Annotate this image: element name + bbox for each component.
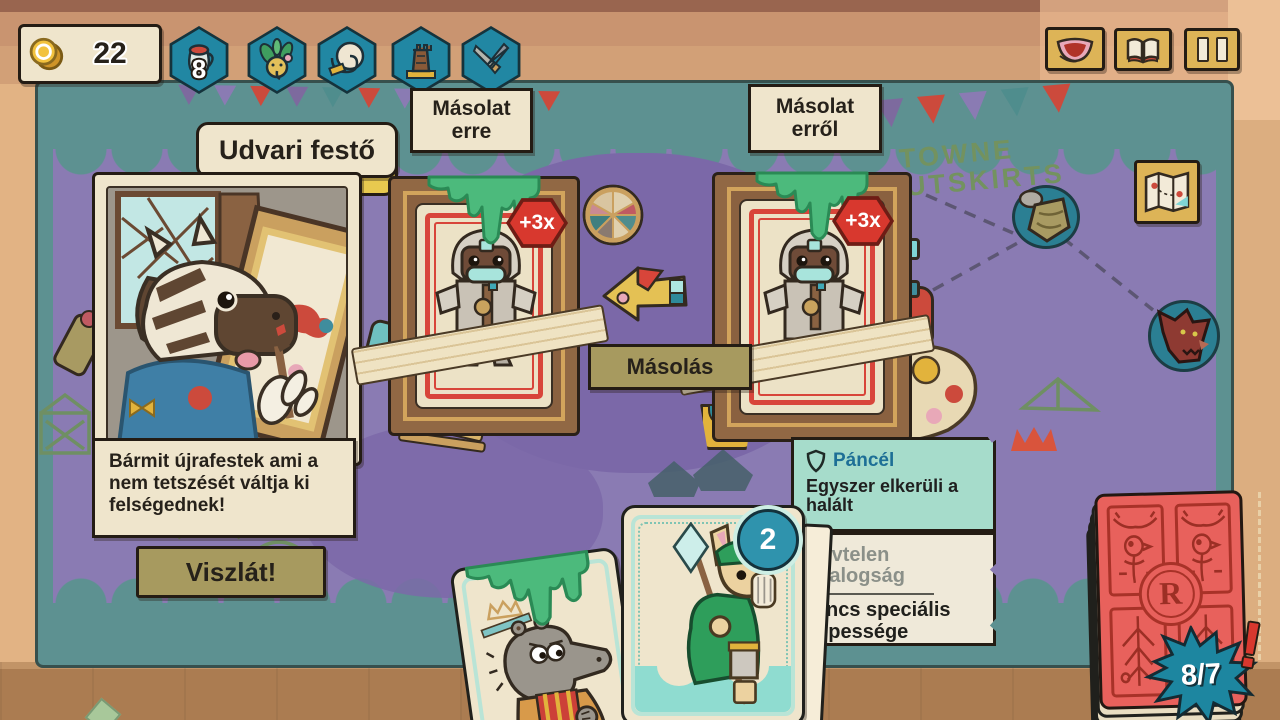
coin-icon: [29, 37, 65, 71]
keyword-description: Egyszer elkerüli a halált: [806, 477, 981, 516]
copy-arrow-icon: [596, 260, 692, 332]
book-icon: [1123, 35, 1163, 65]
event-description: Bármit újrafestek ami a nem tetszését vá…: [92, 438, 356, 538]
event-title: Udvari festő: [219, 135, 375, 166]
journal-button[interactable]: [1114, 28, 1172, 71]
card-counter-badge: 2: [737, 509, 799, 571]
card-name: Névtelen gyalogság: [806, 545, 981, 587]
event-title-banner: Udvari festő: [196, 122, 398, 178]
hand-card-hippo[interactable]: [449, 546, 644, 720]
card-ability: Nincs speciális képessége: [806, 600, 981, 643]
keyword-tooltip: Páncél Egyszer elkerüli a halált: [791, 437, 996, 532]
map-icon: [1144, 171, 1190, 213]
pause-bar: [1216, 37, 1228, 62]
coin-count: 22: [69, 37, 151, 71]
pause-button[interactable]: [1184, 28, 1240, 71]
map-node-parchment[interactable]: [1012, 185, 1080, 249]
mouth-icon: [1055, 34, 1095, 64]
coin-counter: 22: [18, 24, 162, 84]
shield-icon: [806, 449, 826, 473]
character-portrait: [106, 186, 348, 452]
game-screen: TOWNE OUTSKIRTS: [0, 0, 1280, 720]
copy-source-label: Másolat erről: [748, 84, 882, 153]
tape-measure-icon: [326, 38, 368, 82]
daggers-icon: [470, 38, 512, 82]
jug-charge-count: 8: [183, 54, 215, 85]
map-node-wolf[interactable]: [1148, 300, 1220, 372]
elephant-plant-icon: [256, 38, 298, 82]
event-character-card[interactable]: [92, 172, 362, 466]
parchment-icon: [1017, 189, 1075, 245]
table-left-edge: [0, 84, 35, 662]
copy-action-label: Másolás: [588, 344, 752, 390]
crown-doodle: [1011, 427, 1057, 451]
color-wheel: [582, 184, 644, 246]
deck-monogram-medallion: R: [1138, 561, 1204, 627]
pause-bar: [1197, 37, 1209, 62]
wolf-icon: [1153, 306, 1215, 366]
keyword-name: Páncél: [833, 450, 894, 472]
dismiss-button[interactable]: Viszlát!: [136, 546, 326, 598]
tower-icon: [400, 38, 442, 82]
copy-target-label: Másolat erre: [410, 88, 533, 153]
emote-button[interactable]: [1045, 27, 1105, 71]
map-button[interactable]: [1134, 160, 1200, 224]
